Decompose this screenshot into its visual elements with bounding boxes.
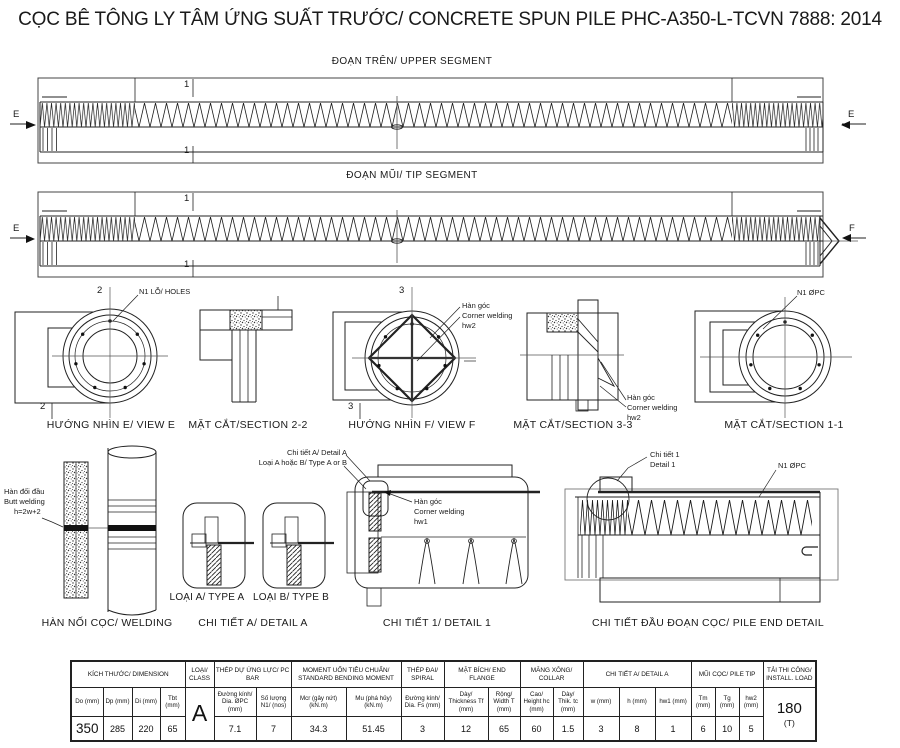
value-pc-dia: 7.1 <box>214 717 256 742</box>
install-load-cell: 180 (T) <box>763 688 816 742</box>
value-hw2: 5 <box>739 717 763 742</box>
section-1-1-drawing <box>695 296 852 418</box>
group-header-bending-moment: MOMENT UỐN TIÊU CHUẨN/ STANDARD BENDING … <box>291 661 401 688</box>
callout-line: Butt welding <box>4 497 45 507</box>
group-header-pile-tip: MŨI CỌC/ PILE TIP <box>691 661 763 688</box>
welding-detail-label: HÀN NỐI CỌC/ WELDING <box>42 617 173 629</box>
view-e-mark-left-tip: E <box>13 223 19 234</box>
view-e-mark-left-upper: E <box>13 109 19 120</box>
tip-segment-drawing <box>10 192 866 277</box>
callout-line: hw1 <box>414 517 464 527</box>
detail-a-label: CHI TIẾT A/ DETAIL A <box>198 617 307 629</box>
holes-callout: N1 LỖ/ HOLES <box>139 287 190 297</box>
col-header-fs: Đường kính/ Dia. Fs (mm) <box>401 688 444 717</box>
detail-1-label: CHI TIẾT 1/ DETAIL 1 <box>383 617 491 629</box>
col-header-tm: Tm (mm) <box>691 688 715 717</box>
callout-line: Corner welding <box>462 311 512 321</box>
view-e-drawing <box>15 287 168 419</box>
pile-drawing-canvas <box>0 0 900 660</box>
value-tf: 12 <box>444 717 488 742</box>
butt-weld-callout: Hàn đối đầu Butt welding h=2w+2 <box>4 487 45 517</box>
section-2-2-drawing <box>200 296 292 402</box>
value-fs: 3 <box>401 717 444 742</box>
section1-mark: 1 <box>184 79 189 90</box>
col-header-pc-qty: Số lượng N1/ (nos) <box>256 688 291 717</box>
callout-line: Hàn đối đầu <box>4 487 45 497</box>
value-tm: 6 <box>691 717 715 742</box>
section1-mark: 1 <box>184 145 189 156</box>
detail-1-weld-callout: Hàn góc Corner welding hw1 <box>414 497 464 527</box>
col-header-tc: Dày/ Thik. tc (mm) <box>553 688 583 717</box>
callout-line: Detail 1 <box>650 460 680 470</box>
col-header-hc: Cao/ Height hc (mm) <box>520 688 553 717</box>
section3-mark-top: 3 <box>399 285 404 296</box>
value-mcr: 34.3 <box>291 717 346 742</box>
col-header-tg: Tg (mm) <box>715 688 739 717</box>
group-header-spiral: THÉP ĐAI/ SPIRAL <box>401 661 444 688</box>
callout-line: Corner welding <box>627 403 677 413</box>
value-di: 220 <box>132 717 160 742</box>
callout-line: Chi tiết A/ Detail A <box>227 448 347 458</box>
section-3-3-weld-callout: Hàn góc Corner welding hw2 <box>627 393 677 423</box>
view-e-mark-right-upper: E <box>848 109 854 120</box>
col-header-di: Di (mm) <box>132 688 160 717</box>
type-b-label: LOẠI B/ TYPE B <box>253 592 329 603</box>
group-header-pc-bar: THÉP DỰ ỨNG LỰC/ PC BAR <box>214 661 291 688</box>
detail-a-drawing <box>183 503 334 588</box>
value-pc-qty: 7 <box>256 717 291 742</box>
callout-line: Loại A hoặc B/ Type A or B <box>227 458 347 468</box>
callout-line: Hàn góc <box>627 393 677 403</box>
view-e-label: HƯỚNG NHÌN E/ VIEW E <box>47 419 175 431</box>
view-f-label: HƯỚNG NHÌN F/ VIEW F <box>348 419 475 431</box>
pc-bar-callout-pile-end: N1 ØPC <box>778 461 806 471</box>
col-header-tf: Dày/ Thickness Tf (mm) <box>444 688 488 717</box>
col-header-hw2: hw2 (mm) <box>739 688 763 717</box>
section3-mark-bottom: 3 <box>348 401 353 412</box>
detail-a-ref-callout: Chi tiết A/ Detail A Loại A hoặc B/ Type… <box>227 448 347 468</box>
section1-mark: 1 <box>184 193 189 204</box>
upper-segment-drawing <box>10 78 866 163</box>
detail-1-ref-callout: Chi tiết 1 Detail 1 <box>650 450 680 470</box>
value-mu: 51.45 <box>346 717 401 742</box>
section-1-1-label: MẶT CẮT/SECTION 1-1 <box>724 419 843 431</box>
value-tbt: 65 <box>160 717 185 742</box>
value-do: 350 <box>71 717 103 742</box>
callout-line: h=2w+2 <box>4 507 45 517</box>
col-header-do: Do (mm) <box>71 688 103 717</box>
col-header-hw1: hw1 (mm) <box>655 688 691 717</box>
col-header-mu: Mu (phá hủy) (kN.m) <box>346 688 401 717</box>
callout-line: Hàn góc <box>462 301 512 311</box>
value-dp: 285 <box>103 717 132 742</box>
section-3-3-label: MẶT CẮT/SECTION 3-3 <box>513 419 632 431</box>
callout-line: Corner welding <box>414 507 464 517</box>
value-h: 8 <box>619 717 655 742</box>
value-hc: 60 <box>520 717 553 742</box>
section-3-3-drawing <box>520 300 626 411</box>
specification-table: KÍCH THƯỚC/ DIMENSION LOẠI/ CLASS THÉP D… <box>70 660 817 742</box>
col-header-tbt: Tbt (mm) <box>160 688 185 717</box>
pile-end-detail-label: CHI TIẾT ĐẦU ĐOẠN CỌC/ PILE END DETAIL <box>592 617 824 629</box>
page-title: CỌC BÊ TÔNG LY TÂM ỨNG SUẤT TRƯỚC/ CONCR… <box>0 9 900 31</box>
view-f-weld-callout: Hàn góc Corner welding hw2 <box>462 301 512 331</box>
install-load-value: 180 <box>765 701 815 717</box>
upper-segment-title: ĐOẠN TRÊN/ UPPER SEGMENT <box>332 56 493 67</box>
class-value: A <box>185 688 214 742</box>
section2-mark-top: 2 <box>97 285 102 296</box>
group-header-detail-a: CHI TIẾT A/ DETAIL A <box>583 661 691 688</box>
type-a-label: LOẠI A/ TYPE A <box>170 592 245 603</box>
section1-mark: 1 <box>184 259 189 270</box>
view-f-mark-right-tip: F <box>849 223 855 234</box>
group-header-install-load: TẢI THI CÔNG/ INSTALL. LOAD <box>763 661 816 688</box>
detail-1-drawing <box>344 455 540 606</box>
group-header-class: LOẠI/ CLASS <box>185 661 214 688</box>
value-w: 3 <box>583 717 619 742</box>
section2-mark-bottom: 2 <box>40 401 45 412</box>
view-f-drawing <box>333 287 476 419</box>
callout-line: Chi tiết 1 <box>650 450 680 460</box>
section-2-2-label: MẶT CẮT/SECTION 2-2 <box>188 419 307 431</box>
col-header-mcr: Mcr (gây nứt) (kN.m) <box>291 688 346 717</box>
pc-bar-callout-section-1-1: N1 ØPC <box>797 288 825 298</box>
install-load-unit: (T) <box>765 720 815 727</box>
callout-line: hw2 <box>627 413 677 423</box>
drawing-sheet: CỌC BÊ TÔNG LY TÂM ỨNG SUẤT TRƯỚC/ CONCR… <box>0 0 900 748</box>
callout-line: hw2 <box>462 321 512 331</box>
group-header-dimension: KÍCH THƯỚC/ DIMENSION <box>71 661 185 688</box>
value-t: 65 <box>488 717 520 742</box>
col-header-h: h (mm) <box>619 688 655 717</box>
col-header-dp: Dp (mm) <box>103 688 132 717</box>
group-header-collar: MĂNG XÔNG/ COLLAR <box>520 661 583 688</box>
group-header-end-flange: MẶT BÍCH/ END FLANGE <box>444 661 520 688</box>
value-tg: 10 <box>715 717 739 742</box>
col-header-t: Rộng/ Width T (mm) <box>488 688 520 717</box>
col-header-pc-dia: Đường kính/ Dia. ØPC (mm) <box>214 688 256 717</box>
tip-segment-title: ĐOẠN MŨI/ TIP SEGMENT <box>346 170 477 181</box>
callout-line: Hàn góc <box>414 497 464 507</box>
value-tc: 1.5 <box>553 717 583 742</box>
pile-end-detail-drawing <box>565 457 838 602</box>
value-hw1: 1 <box>655 717 691 742</box>
col-header-w: w (mm) <box>583 688 619 717</box>
welding-detail-drawing <box>42 446 156 615</box>
